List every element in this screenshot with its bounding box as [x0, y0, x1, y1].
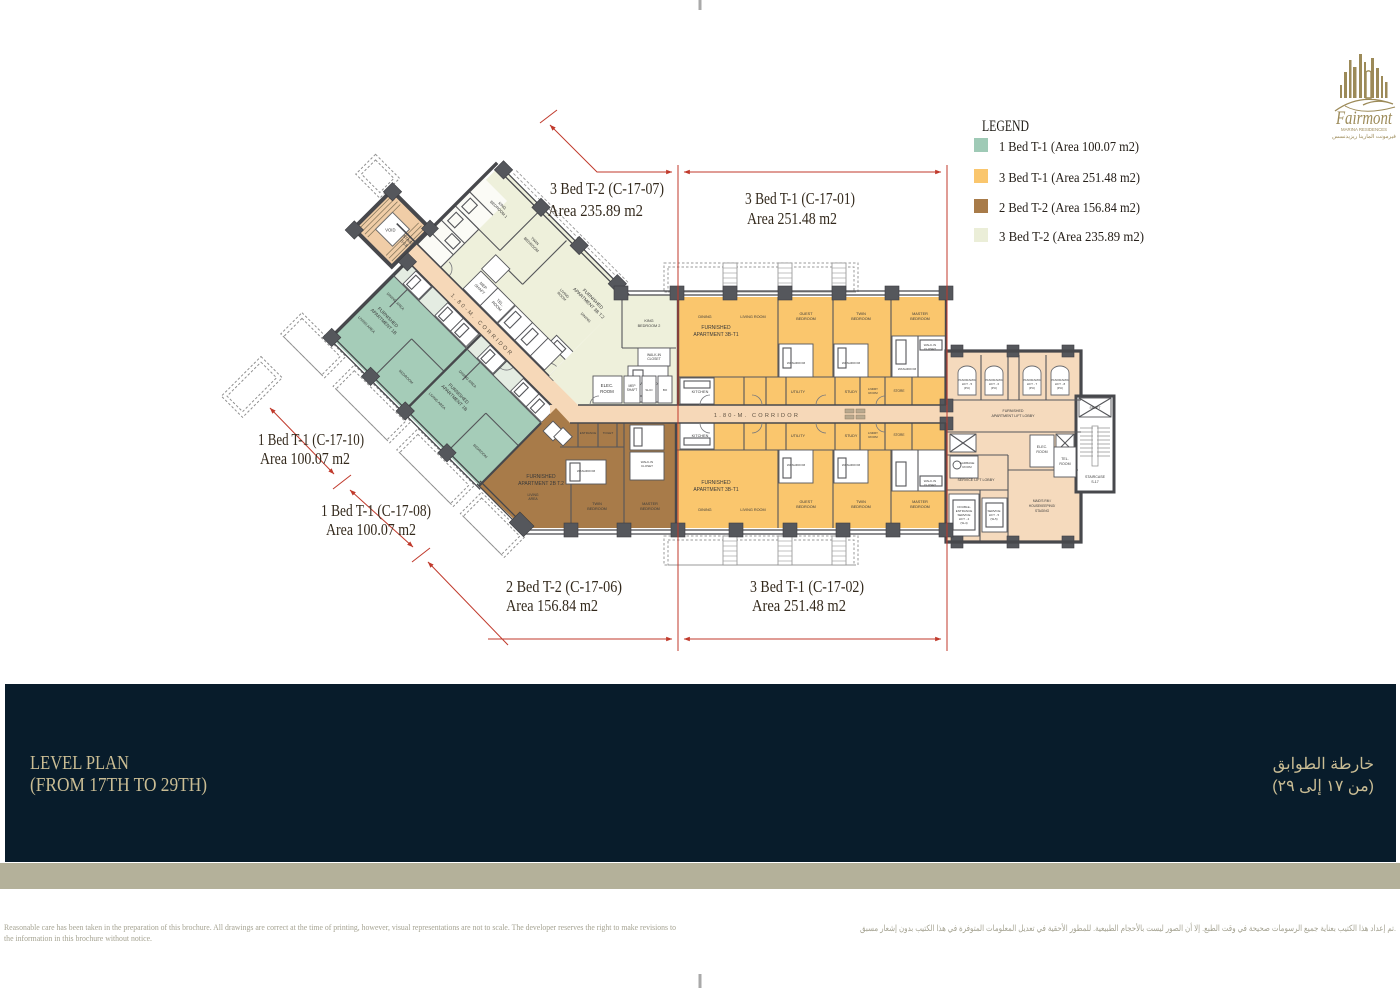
svg-text:KITCHEN: KITCHEN	[692, 390, 709, 394]
svg-text:STUDY: STUDY	[845, 434, 858, 438]
svg-text:Area 251.48 m2: Area 251.48 m2	[752, 596, 846, 615]
svg-text:3 Bed T-1 (C-17-02): 3 Bed T-1 (C-17-02)	[750, 577, 864, 596]
svg-text:MASTER: MASTER	[642, 502, 658, 506]
svg-text:ROOM: ROOM	[868, 435, 878, 439]
svg-text:BEDROOM: BEDROOM	[587, 507, 607, 511]
svg-text:UTILITY: UTILITY	[791, 390, 806, 394]
svg-text:APARTMENT LIFT LOBBY: APARTMENT LIFT LOBBY	[991, 414, 1035, 418]
svg-text:1 Bed T-1 (C-17-10): 1 Bed T-1 (C-17-10)	[258, 430, 364, 449]
svg-text:FURNISHED: FURNISHED	[526, 474, 556, 480]
svg-text:MASTER: MASTER	[912, 312, 928, 316]
svg-text:STUDY: STUDY	[845, 390, 858, 394]
svg-text:3 Bed T-2 (C-17-07): 3 Bed T-2 (C-17-07)	[550, 179, 664, 198]
svg-text:2 Bed T-2 (Area 156.84 m2): 2 Bed T-2 (Area 156.84 m2)	[999, 201, 1140, 216]
svg-text:LIVING ROOM: LIVING ROOM	[740, 315, 765, 319]
svg-text:BEDROOM: BEDROOM	[851, 317, 871, 321]
svg-text:فيرمونت المارينا ريزيدنسس: فيرمونت المارينا ريزيدنسس	[1332, 133, 1396, 140]
svg-text:ROOM: ROOM	[1059, 462, 1070, 466]
svg-text:WASHROOM: WASHROOM	[787, 463, 806, 467]
svg-text:GUEST: GUEST	[799, 500, 813, 504]
svg-text:WASHROOM: WASHROOM	[577, 469, 596, 473]
svg-text:ELEC.: ELEC.	[601, 383, 614, 388]
svg-text:WASHROOM: WASHROOM	[842, 361, 861, 365]
svg-text:1.80-M. CORRIDOR: 1.80-M. CORRIDOR	[714, 413, 800, 419]
svg-text:تم إعداد هذا الكتيب بعناية جمي: تم إعداد هذا الكتيب بعناية جميع الرسومات…	[860, 921, 1396, 934]
svg-text:DINING: DINING	[698, 508, 711, 512]
svg-text:(SL5): (SL5)	[990, 517, 997, 521]
svg-text:FURNISHED: FURNISHED	[701, 480, 731, 486]
svg-text:CLOSET: CLOSET	[924, 347, 936, 351]
svg-text:(PU): (PU)	[991, 386, 997, 390]
svg-text:GUEST: GUEST	[799, 312, 813, 316]
svg-text:HOUSEKEEPING/: HOUSEKEEPING/	[1029, 504, 1056, 508]
svg-text:ROOM: ROOM	[962, 465, 972, 469]
svg-text:(SL4): (SL4)	[960, 521, 967, 525]
svg-text:KING: KING	[644, 319, 653, 323]
svg-text:Area 156.84 m2: Area 156.84 m2	[506, 596, 598, 615]
svg-text:UTILITY: UTILITY	[791, 434, 806, 438]
svg-text:CLOSET: CLOSET	[641, 464, 653, 468]
svg-text:APARTMENT 3B-T1: APARTMENT 3B-T1	[693, 332, 739, 338]
svg-text:TWIN: TWIN	[856, 312, 866, 316]
svg-text:MARINA RESIDENCES: MARINA RESIDENCES	[1341, 127, 1387, 132]
svg-text:BEDROOM: BEDROOM	[910, 505, 930, 509]
svg-text:Reasonable care has been taken: Reasonable care has been taken in the pr…	[4, 923, 676, 932]
svg-text:3 Bed T-2 (Area 235.89 m2): 3 Bed T-2 (Area 235.89 m2)	[999, 230, 1144, 245]
svg-text:Area 251.48 m2: Area 251.48 m2	[747, 209, 837, 228]
svg-text:(PU): (PU)	[1057, 386, 1063, 390]
svg-text:MASTER: MASTER	[912, 500, 928, 504]
svg-text:(PU): (PU)	[964, 386, 970, 390]
svg-text:3 Bed T-1 (C-17-01): 3 Bed T-1 (C-17-01)	[745, 189, 855, 208]
svg-text:ENTRANCE: ENTRANCE	[580, 431, 597, 435]
svg-text:SERVICE LIFT LOBBY: SERVICE LIFT LOBBY	[957, 478, 995, 482]
svg-text:BEDROOM: BEDROOM	[796, 317, 816, 321]
svg-text:LEGEND: LEGEND	[982, 118, 1029, 135]
svg-text:APARTMENT 2B T.2: APARTMENT 2B T.2	[518, 481, 564, 487]
svg-text:BEDROOM: BEDROOM	[910, 317, 930, 321]
svg-text:SHAFT: SHAFT	[1089, 406, 1100, 410]
svg-text:LEVEL PLAN: LEVEL PLAN	[30, 753, 129, 774]
svg-text:STAIRCASE: STAIRCASE	[1085, 475, 1106, 479]
svg-text:CLOSET: CLOSET	[924, 483, 936, 487]
svg-text:TOILET: TOILET	[603, 431, 614, 435]
svg-text:ROOM: ROOM	[600, 389, 614, 394]
svg-text:WASHROOM: WASHROOM	[842, 463, 861, 467]
svg-text:خارطة الطوابق: خارطة الطوابق	[1273, 756, 1374, 773]
svg-text:CLOSET: CLOSET	[647, 357, 661, 361]
svg-text:2 Bed T-2 (C-17-06): 2 Bed T-2 (C-17-06)	[506, 577, 622, 596]
svg-text:3 Bed T-1 (Area 251.48 m2): 3 Bed T-1 (Area 251.48 m2)	[999, 171, 1140, 186]
svg-text:VOID: VOID	[385, 227, 395, 232]
svg-text:STAGING: STAGING	[1035, 509, 1050, 513]
svg-text:TEL.: TEL.	[1061, 457, 1069, 461]
svg-text:STORE: STORE	[894, 433, 905, 437]
svg-text:FURNISHED: FURNISHED	[1003, 409, 1024, 413]
svg-text:WASHROOM: WASHROOM	[898, 367, 917, 371]
svg-text:BEDROOM 2: BEDROOM 2	[638, 324, 661, 328]
svg-text:DINING: DINING	[698, 315, 711, 319]
svg-text:MAID'S RM /: MAID'S RM /	[1033, 499, 1051, 503]
svg-text:Fairmont: Fairmont	[1335, 108, 1392, 129]
svg-text:Area 100.07 m2: Area 100.07 m2	[260, 449, 350, 468]
svg-text:1 Bed T-1 (Area 100.07 m2): 1 Bed T-1 (Area 100.07 m2)	[999, 140, 1139, 155]
svg-text:ROOM: ROOM	[868, 391, 878, 395]
svg-text:ELEC.: ELEC.	[1037, 445, 1047, 449]
svg-text:(FROM 17TH TO 29TH): (FROM 17TH TO 29TH)	[30, 775, 207, 796]
svg-text:(PU): (PU)	[1029, 386, 1035, 390]
svg-text:BEDROOM: BEDROOM	[640, 507, 660, 511]
svg-text:Area 100.07 m2: Area 100.07 m2	[326, 520, 416, 539]
svg-text:BEDROOM: BEDROOM	[796, 505, 816, 509]
svg-text:1 Bed T-1 (C-17-08): 1 Bed T-1 (C-17-08)	[321, 501, 431, 520]
svg-text:(من ١٧ إلى ٢٩): (من ١٧ إلى ٢٩)	[1272, 778, 1374, 795]
svg-text:STORE: STORE	[894, 389, 905, 393]
svg-text:APARTMENT 3B-T1: APARTMENT 3B-T1	[693, 487, 739, 493]
svg-text:TWIN: TWIN	[592, 502, 602, 506]
svg-text:ROOM: ROOM	[1036, 450, 1047, 454]
svg-text:Area 235.89 m2: Area 235.89 m2	[548, 201, 643, 220]
svg-text:AREA: AREA	[528, 497, 538, 501]
svg-text:the information in this brochu: the information in this brochure without…	[4, 934, 152, 943]
svg-text:SH.D: SH.D	[645, 388, 653, 392]
svg-text:KITCHEN: KITCHEN	[692, 434, 709, 438]
svg-text:TWIN: TWIN	[856, 500, 866, 504]
svg-text:LIVING ROOM: LIVING ROOM	[740, 508, 765, 512]
svg-text:FURNISHED: FURNISHED	[701, 325, 731, 331]
svg-text:WASHROOM: WASHROOM	[787, 361, 806, 365]
svg-text:BEDROOM: BEDROOM	[851, 505, 871, 509]
svg-text:S-17: S-17	[1091, 480, 1099, 484]
svg-text:BO: BO	[663, 388, 668, 392]
svg-text:SHAFT: SHAFT	[627, 388, 638, 392]
